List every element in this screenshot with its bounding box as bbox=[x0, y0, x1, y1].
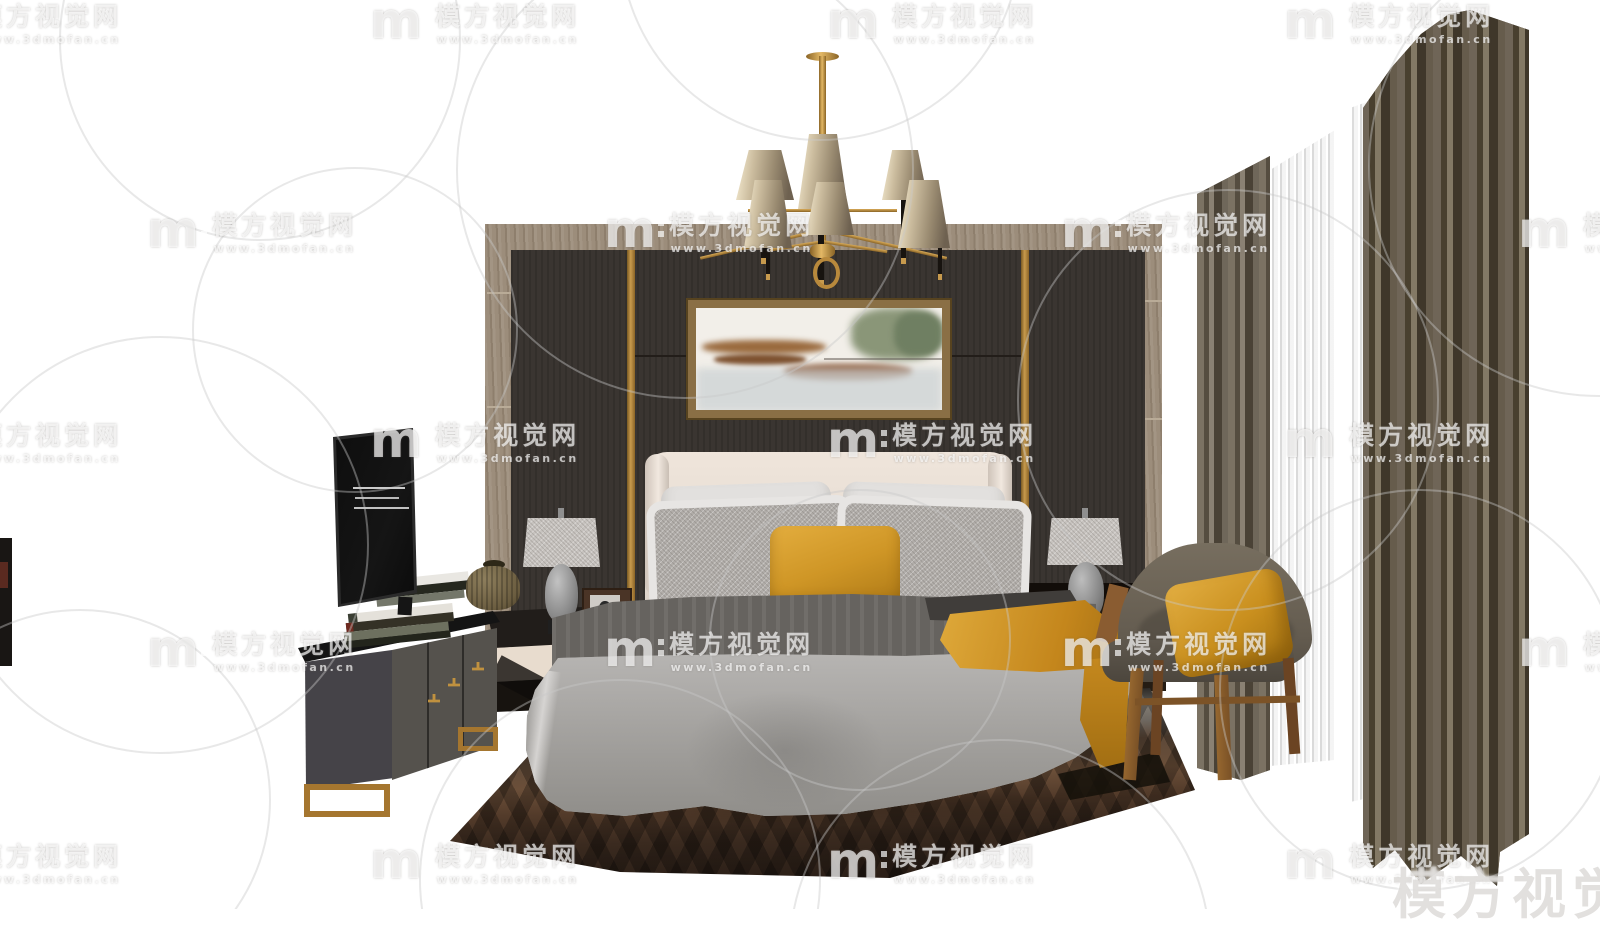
painting-canvas bbox=[696, 308, 942, 410]
watermark-logo-dots bbox=[424, 851, 430, 868]
tv-screen-text-line bbox=[355, 497, 399, 499]
watermark-brand-text: 模方视觉网 bbox=[0, 4, 122, 30]
watermark-logo-dots bbox=[424, 430, 430, 447]
watermark-url-text: www.3dmofan.cn bbox=[1583, 242, 1600, 255]
watermark-brand-text: 模方视觉网 bbox=[212, 213, 357, 239]
door-seam bbox=[427, 638, 429, 773]
watermark-url-text: www.3dmofan.cn bbox=[435, 33, 580, 46]
watermark-corner-text: 模方视觉网 bbox=[1392, 850, 1600, 929]
watermark-logo-dots bbox=[1572, 639, 1578, 656]
watermark-logo-dots bbox=[1572, 220, 1578, 237]
curtain-outer bbox=[1361, 6, 1529, 890]
watermark-url-text: www.3dmofan.cn bbox=[1583, 661, 1600, 674]
console-doors bbox=[392, 628, 500, 782]
watermark-tile: m模方视觉网www.3dmofan.cn bbox=[1518, 211, 1600, 255]
watermark-tile: m模方视觉网www.3dmofan.cn bbox=[0, 421, 122, 465]
watermark-brand-text: 模方视觉网 bbox=[1583, 632, 1600, 658]
watermark-url-text: www.3dmofan.cn bbox=[892, 873, 1037, 886]
watermark-tile: m模方视觉网www.3dmofan.cn bbox=[0, 2, 122, 46]
paint-stroke bbox=[702, 340, 826, 354]
tv-screen-text-line bbox=[353, 487, 405, 489]
watermark-logo-dots bbox=[1338, 430, 1344, 447]
watermark-url-text: www.3dmofan.cn bbox=[212, 242, 357, 255]
watermark-logo-dots bbox=[1338, 851, 1344, 868]
cropped-furniture-left-edge bbox=[0, 538, 12, 666]
rendered-scene: { "scene": { "description": "3D rendered… bbox=[0, 0, 1600, 909]
wall-panel-seam bbox=[948, 355, 1021, 357]
watermark-logo-icon: m bbox=[370, 842, 419, 881]
watermark-logo-icon: m bbox=[370, 2, 419, 41]
watermark-url-text: www.3dmofan.cn bbox=[0, 873, 122, 886]
paint-stroke bbox=[696, 368, 942, 410]
wall-frame-seam bbox=[487, 292, 511, 294]
watermark-logo-dots bbox=[424, 11, 430, 28]
chandelier-hub bbox=[810, 244, 835, 258]
watermark-tile: m模方视觉网www.3dmofan.cn bbox=[827, 2, 1037, 46]
tv bbox=[330, 425, 420, 610]
paint-stroke bbox=[824, 358, 942, 360]
watermark-logo-dots bbox=[201, 220, 207, 237]
tv-stand-neck bbox=[398, 597, 413, 616]
wall-frame-seam bbox=[1145, 418, 1162, 420]
paint-stroke bbox=[714, 354, 806, 365]
console-front-panel bbox=[303, 650, 395, 792]
watermark-url-text: www.3dmofan.cn bbox=[0, 33, 122, 46]
watermark-logo-icon: m bbox=[1284, 842, 1333, 881]
chandelier-ring bbox=[813, 257, 840, 289]
watermark-tile: m模方视觉网www.3dmofan.cn bbox=[147, 211, 357, 255]
watermark-brand-text: 模方视觉网 bbox=[892, 4, 1037, 30]
tv-screen bbox=[330, 425, 420, 610]
wall-frame-seam bbox=[487, 406, 511, 408]
watermark-brand-text: 模方视觉网 bbox=[435, 4, 580, 30]
watermark-brand-text: 模方视觉网 bbox=[0, 423, 122, 449]
wall-panel-seam bbox=[635, 355, 688, 357]
lamp-shade bbox=[523, 518, 600, 567]
cropped-furniture-left-accent bbox=[0, 562, 8, 588]
vase-body bbox=[466, 566, 520, 610]
abstract-painting bbox=[686, 298, 952, 420]
vase bbox=[466, 560, 520, 610]
watermark-tile: m模方视觉网www.3dmofan.cn bbox=[1518, 630, 1600, 674]
paint-stroke bbox=[894, 312, 942, 356]
watermark-url-text: www.3dmofan.cn bbox=[435, 873, 580, 886]
watermark-logo-dots bbox=[201, 639, 207, 656]
curtain-inner bbox=[1197, 150, 1270, 782]
lamp-shade bbox=[1047, 518, 1123, 565]
watermark-logo-dots bbox=[881, 11, 887, 28]
watermark-logo-icon: m bbox=[147, 630, 196, 669]
watermark-logo-icon: m bbox=[1284, 2, 1333, 41]
watermark-url-text: www.3dmofan.cn bbox=[0, 452, 122, 465]
watermark-tile: m模方视觉网www.3dmofan.cn bbox=[0, 842, 122, 886]
watermark-logo-icon: m bbox=[827, 2, 876, 41]
watermark-logo-icon: m bbox=[147, 211, 196, 250]
duvet-fold-shadow bbox=[685, 690, 885, 810]
watermark-logo-dots bbox=[1338, 11, 1344, 28]
watermark-url-text: www.3dmofan.cn bbox=[892, 33, 1037, 46]
console-leg-frame-right bbox=[458, 727, 498, 751]
vase-ridges bbox=[466, 566, 520, 610]
watermark-brand-text: 模方视觉网 bbox=[1583, 213, 1600, 239]
wall-frame-seam bbox=[1145, 300, 1162, 302]
watermark-brand-text: 模方视觉网 bbox=[0, 844, 122, 870]
watermark-tile: m模方视觉网www.3dmofan.cn bbox=[370, 2, 580, 46]
tv-screen-text-line bbox=[354, 507, 409, 509]
console-leg-frame-left bbox=[304, 784, 390, 817]
